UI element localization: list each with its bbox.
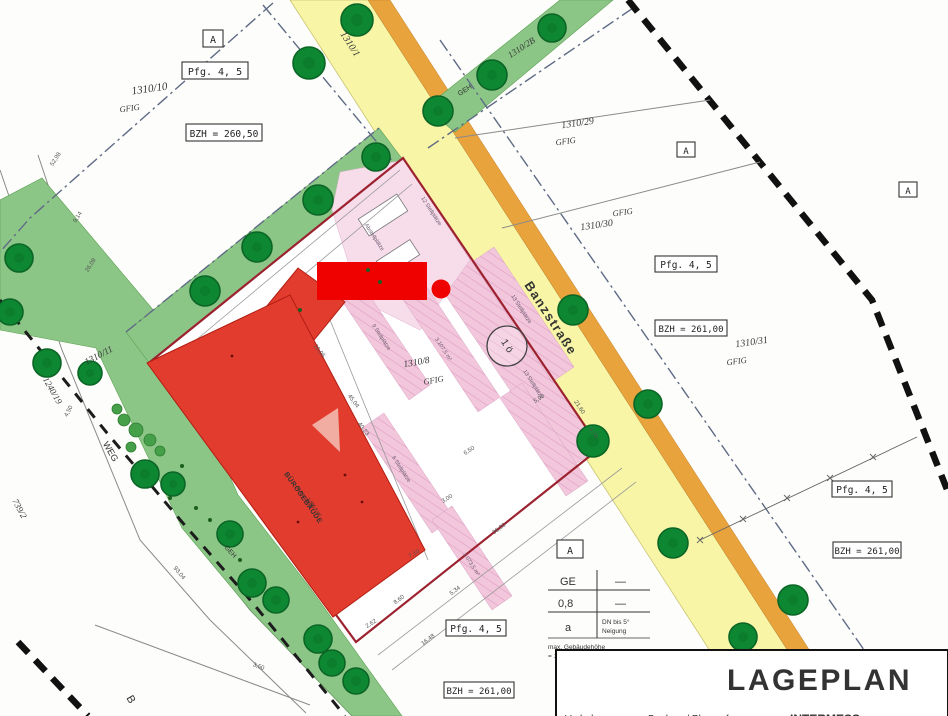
label-739-2: 739/2 (10, 497, 29, 520)
legend-dn-1: DN bis 5° (602, 618, 630, 626)
label-1240-19: 1240/19 (41, 375, 65, 406)
box-pfg-4: Pfg. 4, 5 (450, 624, 501, 635)
redaction-box (317, 262, 427, 300)
site-plan-drawing: BÜROGEBÄUDE 68,94 / 26,20 1.805,8 m² 1 ö (0, 0, 948, 716)
box-bzh-2: BZH = 261,00 (658, 325, 723, 335)
tree-icon (217, 521, 243, 547)
tree-icon (242, 232, 272, 262)
red-dot-marker (432, 280, 451, 299)
legend-grz: 0,8 (558, 598, 573, 610)
legend-dash1: — (615, 576, 626, 588)
title-lageplan: LAGEPLAN (727, 664, 912, 697)
dim-label: 52,98 (50, 151, 63, 167)
label-gfig-4: GFIG (726, 355, 748, 368)
label-gfig-2: GFIG (555, 135, 577, 148)
legend-ge: GE (560, 576, 576, 588)
label-1310-30: 1310/30 (580, 218, 614, 233)
tree-icon (131, 460, 159, 488)
box-bzh-1: BZH = 260,50 (190, 129, 259, 140)
legend-table: A GE — 0,8 — a DN bis 5° Neigung max. Ge… (548, 540, 650, 660)
label-1310-31: 1310/31 (735, 335, 769, 350)
plan-area-boundary (628, 0, 948, 492)
tree-icon (423, 96, 453, 126)
label-gfig-3: GFIG (612, 206, 634, 219)
box-pfg-1: Pfg. 4, 5 (188, 67, 242, 78)
tree-icon (293, 47, 325, 79)
label-gfig-1: GFIG (119, 102, 141, 115)
dim-label: 4,50 (64, 404, 75, 418)
dim-label: 16,48 (421, 633, 437, 647)
dim-label: 3,50 (252, 662, 266, 672)
tree-icon (303, 185, 333, 215)
lageplan-scan: BÜROGEBÄUDE 68,94 / 26,20 1.805,8 m² 1 ö (0, 0, 948, 716)
label-b: B (124, 693, 138, 705)
box-bzh-4: BZH = 261,00 (446, 687, 511, 697)
titleblock-col3: INTERMESS (790, 712, 860, 716)
dim-label: 9,14 (73, 210, 85, 224)
label-1310-10: 1310/10 (131, 81, 169, 98)
tree-icon (343, 668, 369, 694)
box-pfg-2: Pfg. 4, 5 (660, 260, 711, 271)
tree-icon (477, 60, 507, 90)
tree-icon (161, 472, 185, 496)
box-a-3: A (905, 187, 911, 197)
tree-icon (778, 585, 808, 615)
legend-a: a (565, 622, 572, 634)
box-a-1: A (210, 35, 216, 46)
box-a-2: A (683, 147, 689, 157)
tree-icon (238, 569, 266, 597)
tree-icon (729, 623, 757, 651)
label-1310-29: 1310/29 (561, 116, 595, 131)
tree-icon (190, 276, 220, 306)
tree-icon (634, 390, 662, 418)
tree-icon (304, 625, 332, 653)
circle-marker-1o: 1 ö (487, 326, 527, 366)
tree-icon (362, 143, 390, 171)
tree-icon (658, 528, 688, 558)
tree-icon (263, 587, 289, 613)
tree-icon (538, 14, 566, 42)
box-pfg-3: Pfg. 4, 5 (836, 485, 887, 496)
tree-icon (0, 299, 23, 325)
legend-dash2: — (615, 598, 626, 610)
tree-icon (33, 349, 61, 377)
title-block: LAGEPLAN Vorhaben Bauherr / Planverfasse… (556, 650, 948, 716)
legend-marker: A (567, 546, 573, 557)
tree-icon (5, 244, 33, 272)
tree-icon (319, 650, 345, 676)
legend-dn-2: Neigung (602, 628, 627, 635)
box-bzh-3: BZH = 261,00 (834, 547, 899, 557)
